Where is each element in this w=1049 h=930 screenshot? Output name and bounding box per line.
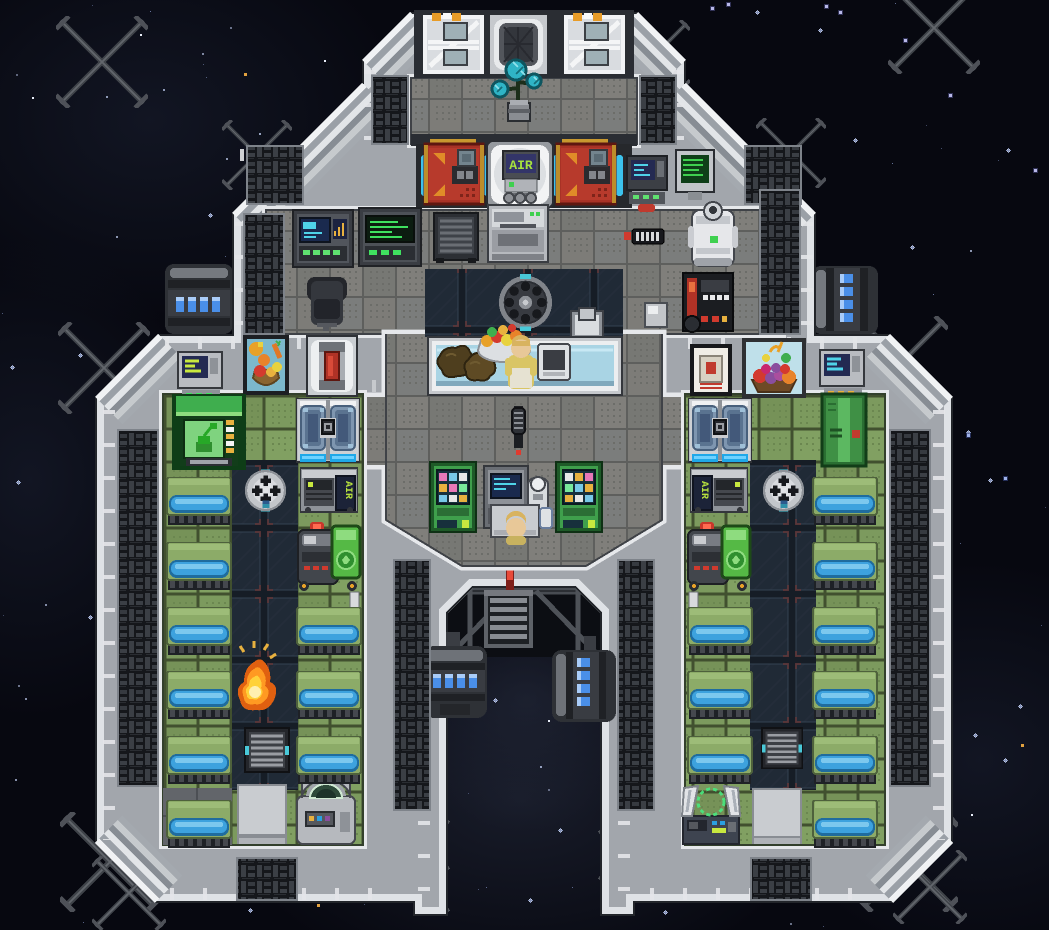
svg-text:AIR: AIR [509,158,533,173]
